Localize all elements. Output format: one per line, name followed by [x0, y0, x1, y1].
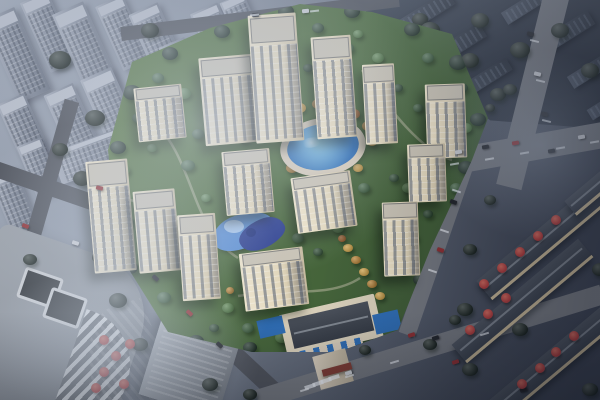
- aerial-render-scene: [0, 0, 600, 400]
- color-grade-overlay: [0, 0, 600, 400]
